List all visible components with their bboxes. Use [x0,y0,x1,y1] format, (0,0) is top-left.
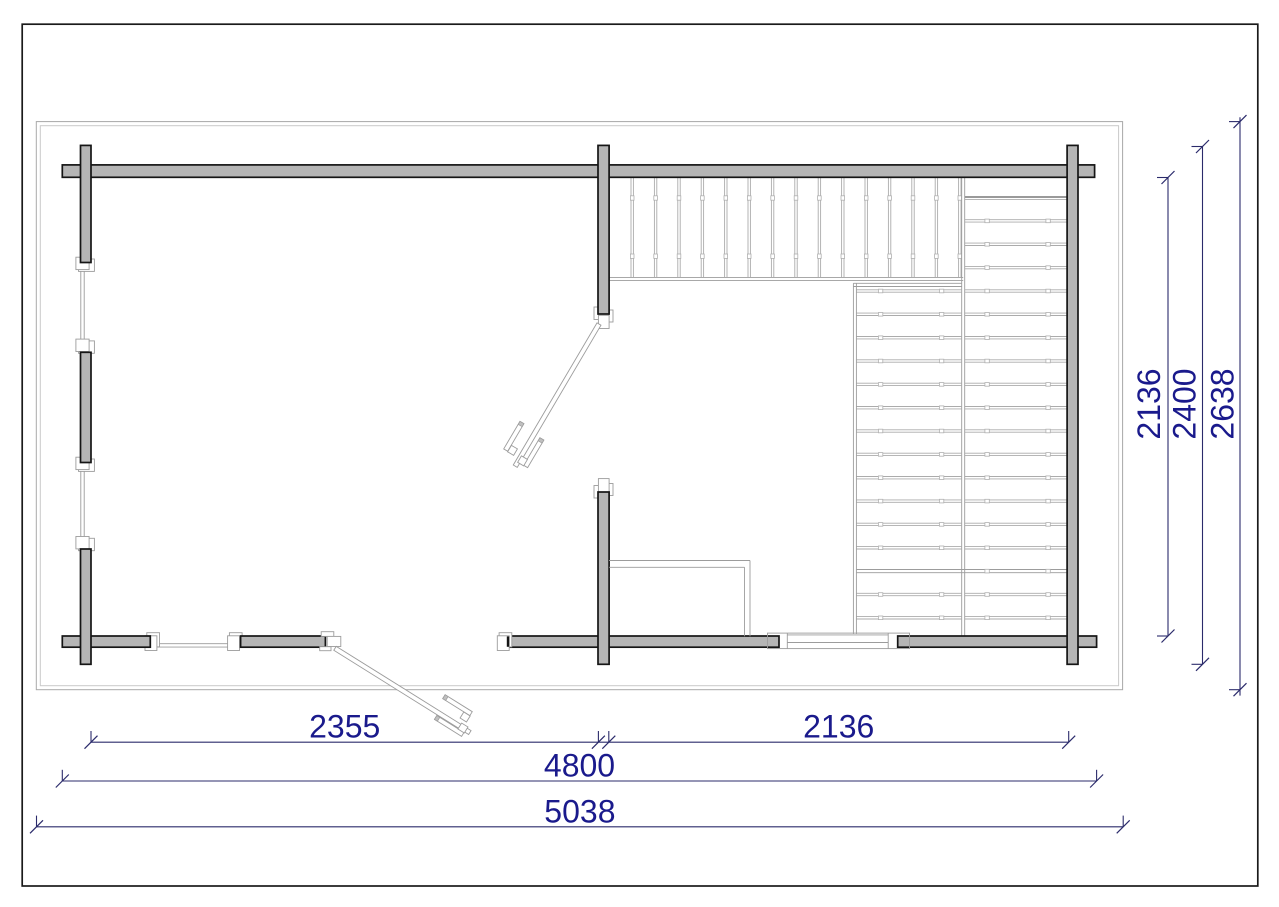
svg-text:5038: 5038 [544,793,615,829]
svg-text:2355: 2355 [309,709,380,745]
svg-text:2136: 2136 [803,709,874,745]
svg-text:2638: 2638 [1205,368,1241,439]
svg-text:2136: 2136 [1131,368,1167,439]
svg-text:4800: 4800 [544,747,615,783]
svg-text:2400: 2400 [1166,368,1202,439]
